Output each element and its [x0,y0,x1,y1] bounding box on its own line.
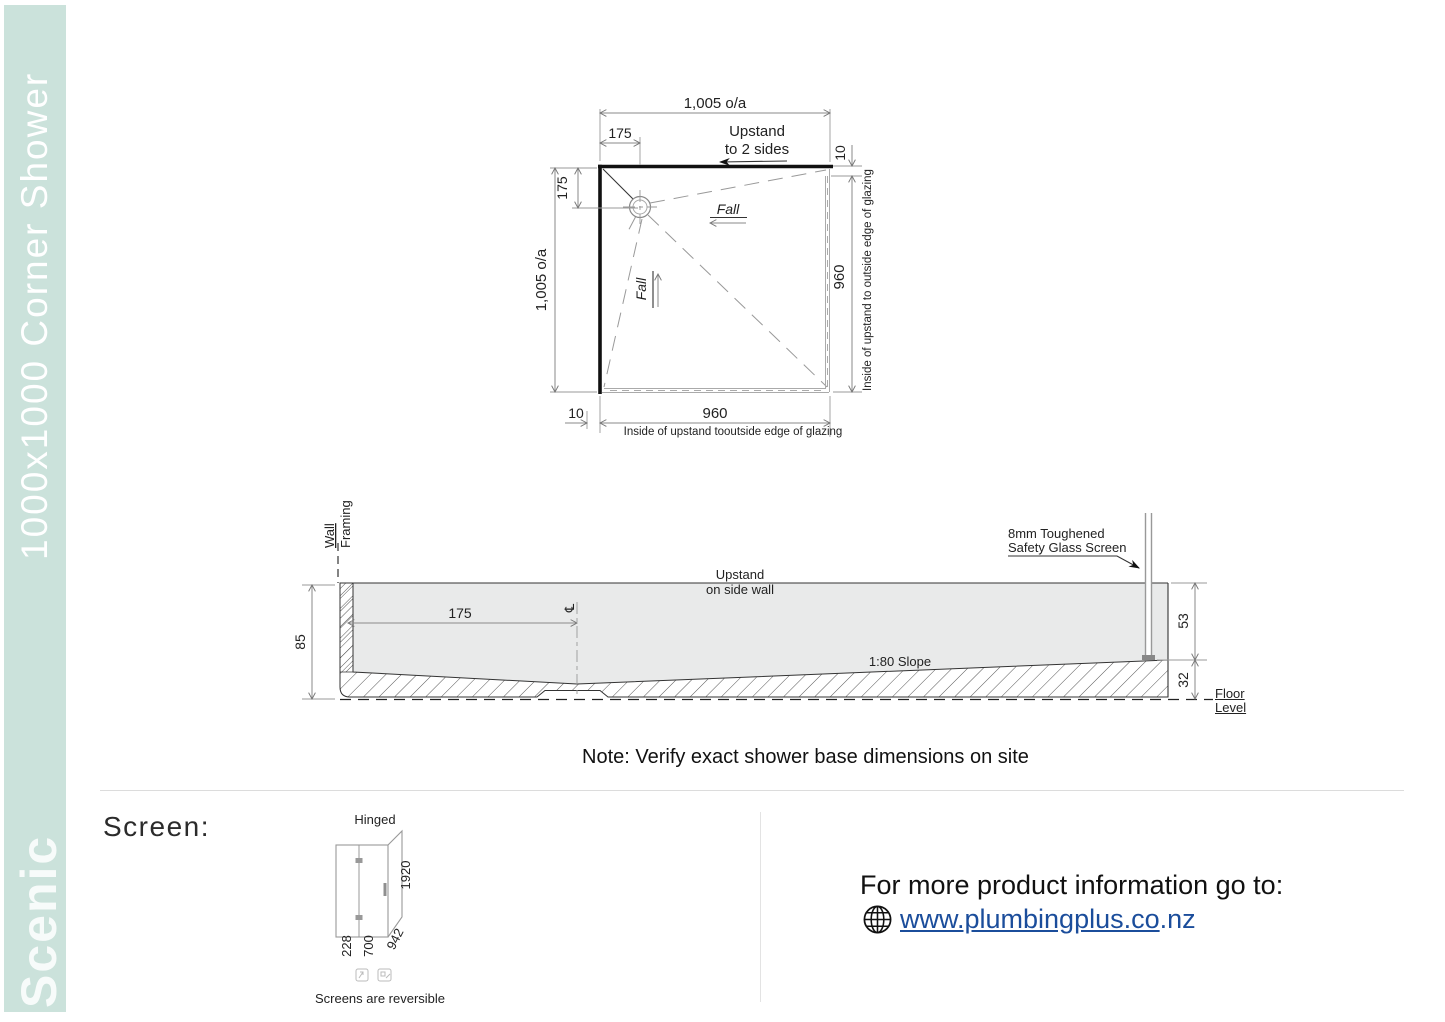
plan-dimension-linework [550,109,862,437]
glass-screen-note-line1: 8mm Toughened [1008,526,1105,541]
section-upstand-note-line1: Upstand [716,567,764,582]
section-dim-upstand-height: 53 [1175,613,1191,629]
plan-caption-right: Inside of upstand to outside edge of gla… [862,169,874,391]
vertical-divider [760,812,761,1002]
plumbingplus-link[interactable]: www.plumbingplus.co.nz [900,904,1196,935]
screen-dim-door: 228 [339,935,354,957]
section-centerline-symbol: ℄ [563,603,578,613]
screen-dim-panel: 700 [361,935,376,957]
plan-dim-right-glazing: 960 [831,264,848,289]
plumbingplus-link-text[interactable]: www.plumbingplus.co [900,904,1160,934]
plan-dim-bottom-gap: 10 [568,405,584,421]
screen-dim-return: 942 [383,926,406,952]
horizontal-divider [100,790,1404,791]
section-slope-label: 1:80 Slope [869,654,931,669]
screen-reversible-note: Screens are reversible [315,991,445,1006]
hinge-bottom [356,915,363,920]
hinge-top [356,858,363,863]
reversible-icon-right [378,969,391,981]
footer-info: For more product information go to: www.… [860,870,1283,935]
screen-type-label: Hinged [354,812,395,827]
plan-dim-top-overall: 1,005 o/a [684,95,747,112]
section-dim-total-height: 85 [292,634,308,650]
plan-dim-bottom-glazing: 960 [702,405,727,422]
section-view-drawing: Wall Framing 85 175 ℄ Upstand on side wa… [290,490,1260,760]
brand-logo: Scenic [10,835,68,1008]
screen-section-heading: Screen: [103,811,210,843]
plan-view-drawing: 1,005 o/a 175 Upstand to 2 sides 10 960 … [520,85,920,460]
section-wall-framing-line1: Wall [322,523,337,548]
glass-screen-note-line2: Safety Glass Screen [1008,540,1127,555]
screen-type-drawing: Hinged 1920 228 700 942 Screens are reve… [295,805,485,1010]
globe-icon [862,904,893,935]
plan-fall-label-vertical: Fall [633,277,649,300]
screen-linework [336,831,402,937]
section-upstand-note-line2: on side wall [706,582,774,597]
section-dim-base-edge-height: 32 [1175,672,1191,688]
plan-caption-bottom: Inside of upstand tooutside edge of glaz… [624,426,843,438]
footer-prompt: For more product information go to: [860,870,1283,901]
floor-level-label: Floor Level [1215,687,1248,715]
spec-sheet-page: 1000x1000 Corner Shower Scenic [0,0,1445,1022]
screen-dim-height: 1920 [398,861,413,890]
plan-dim-right-gap: 10 [832,145,848,161]
plumbingplus-link-suffix[interactable]: .nz [1160,904,1196,934]
plan-dim-top-drain: 175 [608,125,632,141]
section-upstand-hatch [340,583,353,672]
product-title: 1000x1000 Corner Shower [14,72,56,560]
plan-upstand-note-line2: to 2 sides [725,141,789,158]
reversible-icon-left [356,969,368,981]
plan-fall-label-horizontal: Fall [717,201,740,217]
plan-dim-left-overall: 1,005 o/a [533,248,550,311]
plan-upstand-note-line1: Upstand [729,123,785,140]
site-note: Note: Verify exact shower base dimension… [582,746,1029,769]
section-wall-framing-line2: Framing [338,500,353,548]
door-handle [384,883,387,896]
section-dim-drain-offset: 175 [448,605,472,621]
plan-dim-left-drain: 175 [554,176,570,200]
